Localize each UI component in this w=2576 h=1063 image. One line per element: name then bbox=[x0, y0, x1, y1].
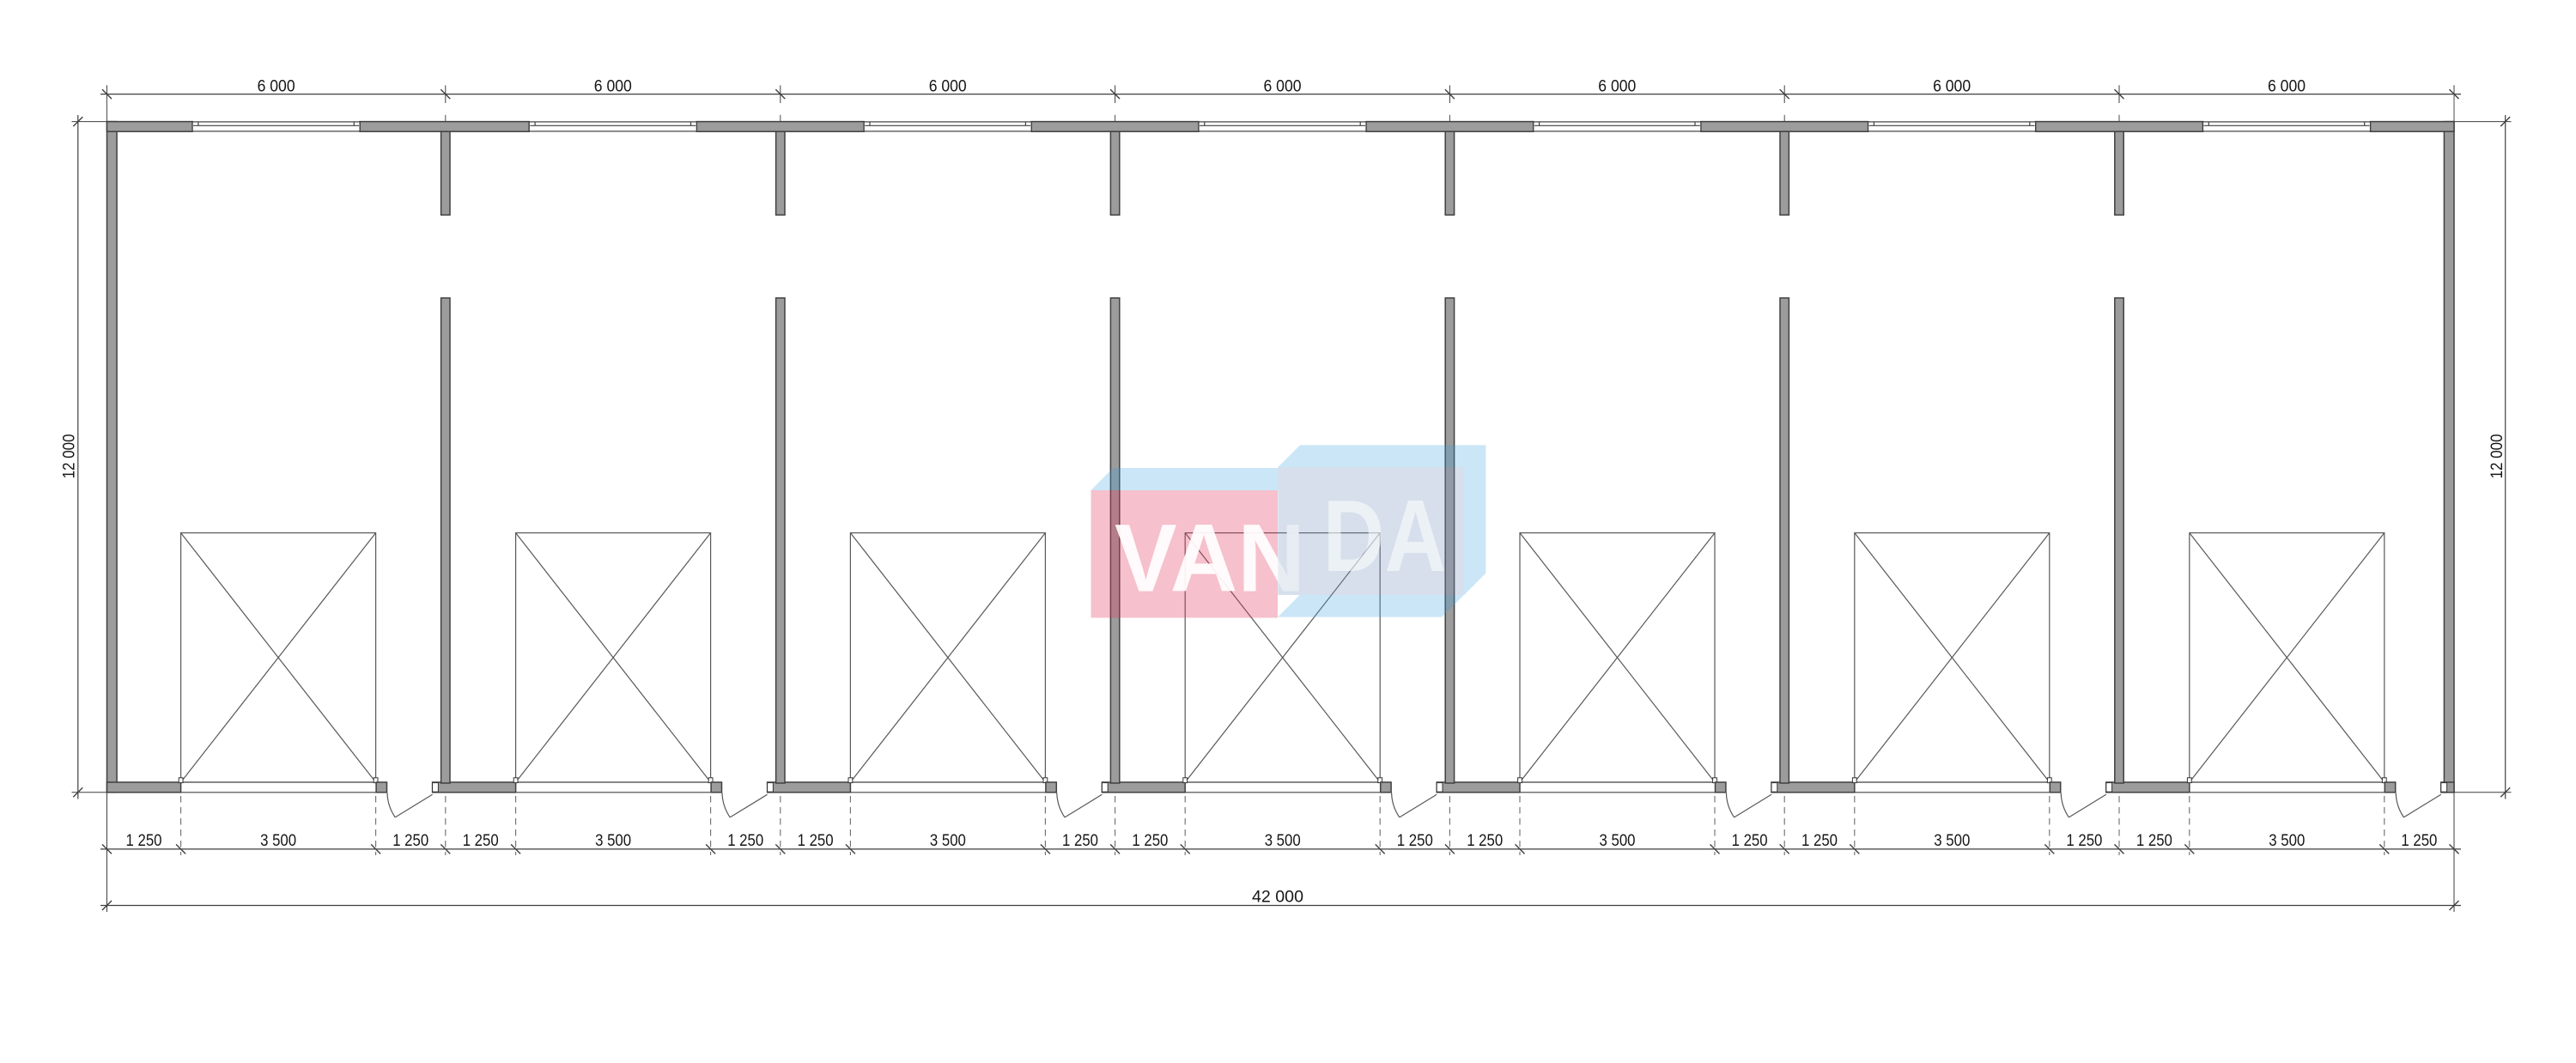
svg-text:1 250: 1 250 bbox=[1062, 832, 1098, 850]
svg-text:DA: DA bbox=[1323, 479, 1447, 593]
svg-text:1 250: 1 250 bbox=[2136, 832, 2172, 850]
svg-text:1 250: 1 250 bbox=[392, 832, 428, 850]
svg-text:1 250: 1 250 bbox=[1397, 832, 1433, 850]
svg-text:3 500: 3 500 bbox=[595, 832, 631, 850]
svg-text:VAN: VAN bbox=[1115, 504, 1305, 611]
svg-text:6 000: 6 000 bbox=[2268, 77, 2306, 95]
svg-text:6 000: 6 000 bbox=[594, 77, 632, 95]
svg-text:3 500: 3 500 bbox=[930, 832, 966, 850]
svg-text:1 250: 1 250 bbox=[463, 832, 499, 850]
svg-text:42 000: 42 000 bbox=[1252, 889, 1303, 907]
svg-text:1 250: 1 250 bbox=[2066, 832, 2102, 850]
svg-text:3 500: 3 500 bbox=[1265, 832, 1301, 850]
svg-text:6 000: 6 000 bbox=[1264, 77, 1302, 95]
svg-text:6 000: 6 000 bbox=[258, 77, 295, 95]
svg-text:3 500: 3 500 bbox=[260, 832, 296, 850]
svg-text:1 250: 1 250 bbox=[1801, 832, 1838, 850]
svg-text:6 000: 6 000 bbox=[929, 77, 967, 95]
svg-text:1 250: 1 250 bbox=[727, 832, 763, 850]
svg-text:1 250: 1 250 bbox=[1132, 832, 1168, 850]
svg-text:1 250: 1 250 bbox=[126, 832, 162, 850]
svg-text:1 250: 1 250 bbox=[2401, 832, 2437, 850]
svg-text:3 500: 3 500 bbox=[2269, 832, 2305, 850]
svg-text:3 500: 3 500 bbox=[1934, 832, 1970, 850]
svg-text:3 500: 3 500 bbox=[1600, 832, 1636, 850]
svg-text:12 000: 12 000 bbox=[2488, 434, 2506, 478]
svg-text:1 250: 1 250 bbox=[1467, 832, 1503, 850]
svg-text:6 000: 6 000 bbox=[1933, 77, 1971, 95]
svg-text:1 250: 1 250 bbox=[1732, 832, 1768, 850]
svg-text:1 250: 1 250 bbox=[798, 832, 834, 850]
svg-text:6 000: 6 000 bbox=[1598, 77, 1636, 95]
svg-text:12 000: 12 000 bbox=[60, 434, 78, 478]
